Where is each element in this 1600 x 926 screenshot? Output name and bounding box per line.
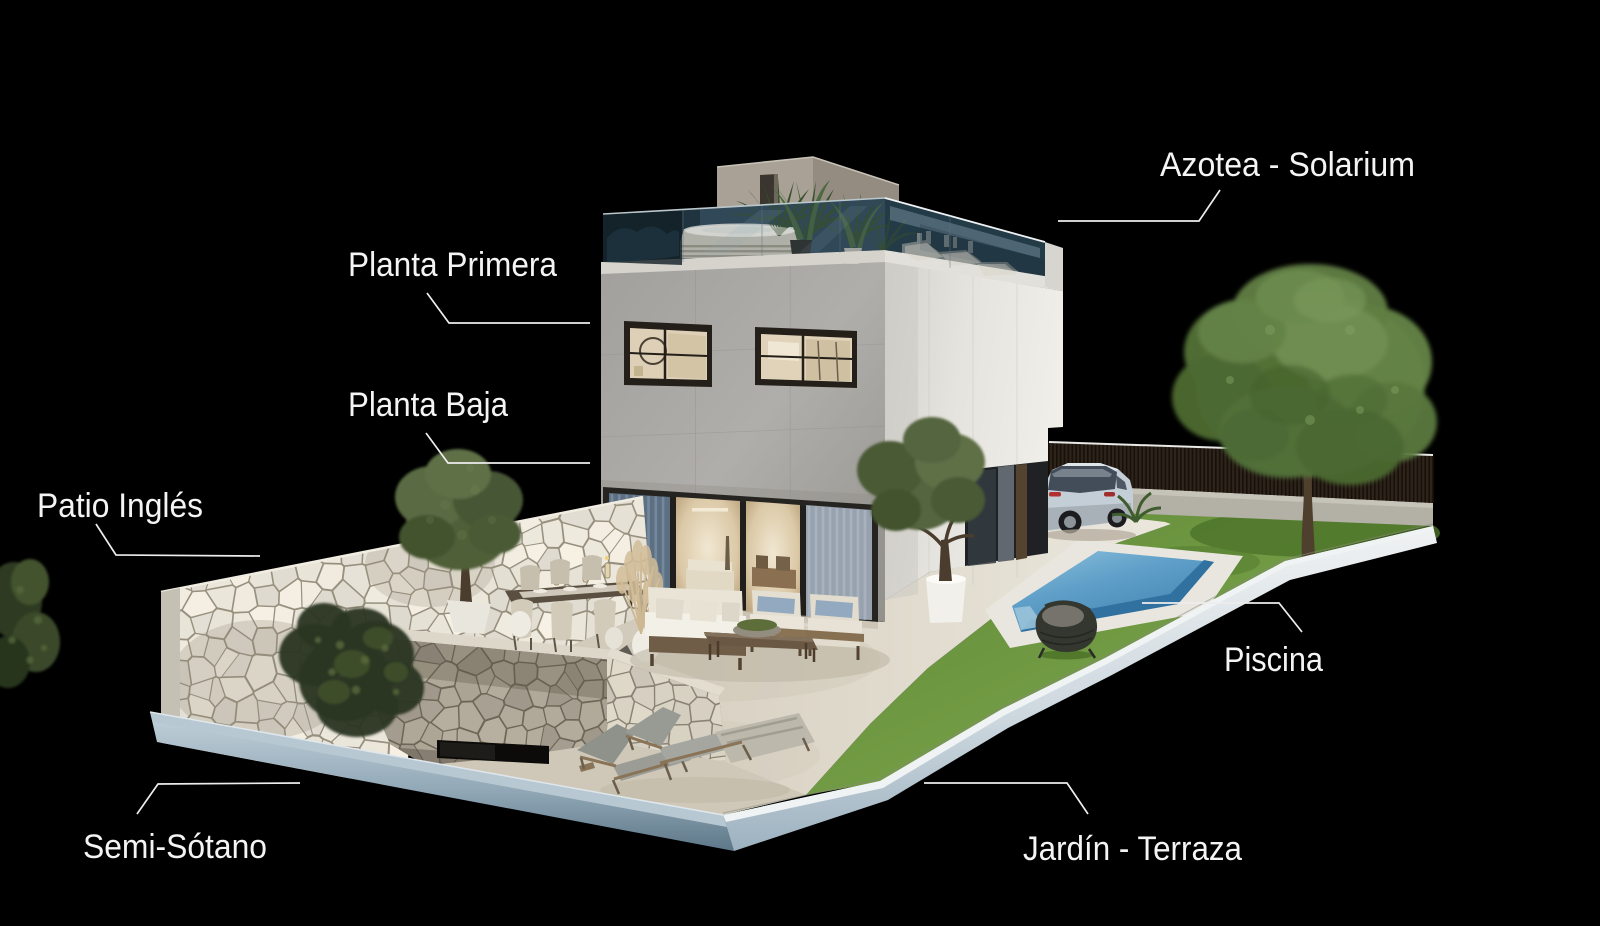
svg-text:Planta Baja: Planta Baja xyxy=(348,386,509,424)
svg-text:Patio Inglés: Patio Inglés xyxy=(37,487,203,525)
svg-text:Azotea - Solarium: Azotea - Solarium xyxy=(1160,146,1415,184)
svg-text:Piscina: Piscina xyxy=(1224,641,1324,679)
svg-text:Planta Primera: Planta Primera xyxy=(348,246,558,284)
svg-text:Jardín - Terraza: Jardín - Terraza xyxy=(1023,830,1243,868)
svg-text:Semi-Sótano: Semi-Sótano xyxy=(83,828,267,866)
